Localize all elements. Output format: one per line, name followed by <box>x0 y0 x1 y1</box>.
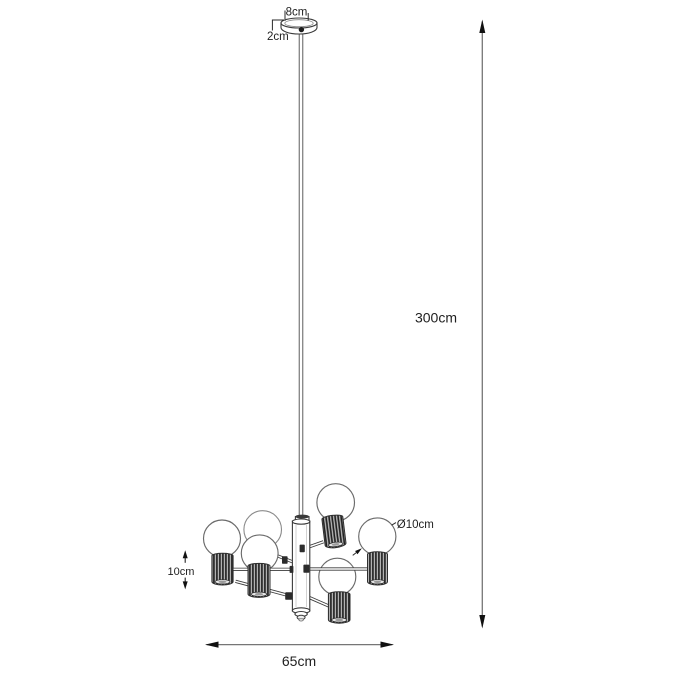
socket <box>212 553 233 585</box>
bulb <box>359 518 396 555</box>
socket <box>368 552 388 585</box>
arrow-up-icon <box>479 20 485 34</box>
lamp-dimension-drawing: 8cm 2cm 300cm <box>0 0 688 688</box>
dimension-canopy-width: 8cm <box>285 7 308 21</box>
bulb-diameter-label: Ø10cm <box>397 519 434 531</box>
canopy-width-label: 8cm <box>286 7 308 19</box>
column-top-rim <box>292 519 309 524</box>
arrow-down-icon <box>183 581 188 589</box>
arrow-right-icon <box>381 642 395 648</box>
socket <box>322 514 347 549</box>
arm-joint <box>300 545 305 553</box>
suspension-length-label: 300cm <box>415 310 457 326</box>
socket <box>328 592 350 623</box>
arrow-left-icon <box>205 642 219 648</box>
fixture-width-label: 65cm <box>282 653 316 669</box>
canopy-height-label: 2cm <box>267 31 289 43</box>
dimension-fixture-width: 65cm <box>205 642 394 670</box>
finial-tip <box>299 619 303 622</box>
collar-rim <box>295 515 309 519</box>
arrow-down-icon <box>479 615 485 629</box>
diagram-canvas: 8cm 2cm 300cm <box>0 0 688 688</box>
bulb <box>319 558 356 595</box>
cable-grip <box>299 27 304 32</box>
arm-joint <box>290 566 294 573</box>
dimension-suspension-length: 300cm <box>415 20 485 629</box>
arm-joint <box>303 565 309 573</box>
suspension-cable <box>299 31 303 517</box>
arm-joint <box>285 592 292 600</box>
arm-joint <box>282 556 288 564</box>
bulb <box>204 520 241 557</box>
socket-height-label: 10cm <box>168 566 195 578</box>
dimension-socket-height: 10cm <box>168 550 195 589</box>
socket <box>248 563 270 597</box>
arrow-up-icon <box>183 550 188 558</box>
